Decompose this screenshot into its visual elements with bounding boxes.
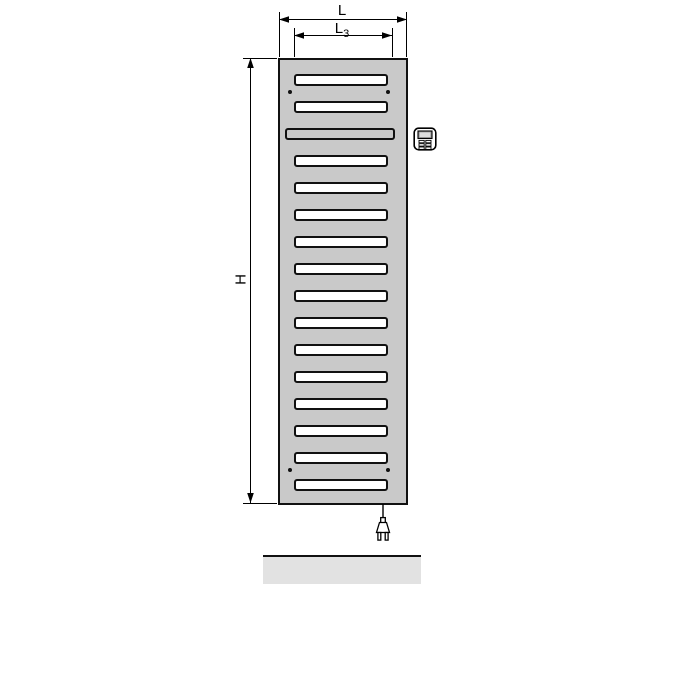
radiator-slat — [294, 371, 388, 383]
radiator-slat — [294, 155, 388, 167]
floor-bar — [263, 555, 421, 584]
dimension-label-slat-width: L3 — [329, 21, 355, 40]
arrow-L3-right — [382, 32, 392, 39]
mounting-dot — [386, 468, 390, 472]
dimension-label-height: H — [234, 267, 249, 293]
power-plug-icon — [370, 504, 398, 544]
radiator-slat — [294, 182, 388, 194]
radiator-slat — [294, 236, 388, 248]
radiator-slat — [294, 317, 388, 329]
arrow-H-bottom — [247, 493, 254, 503]
arrow-H-top — [247, 58, 254, 68]
dimension-label-slat-width-base: L — [335, 20, 343, 37]
radiator-slat — [294, 425, 388, 437]
radiator-collector-slat — [285, 128, 395, 140]
arrow-L3-left — [294, 32, 304, 39]
radiator-slat — [294, 452, 388, 464]
mounting-dot — [288, 90, 292, 94]
radiator-slat — [294, 74, 388, 86]
radiator-slat — [294, 101, 388, 113]
arrow-L-right — [397, 16, 407, 23]
radiator-slat — [294, 209, 388, 221]
mounting-dot — [386, 90, 390, 94]
radiator-slat — [294, 290, 388, 302]
radiator-dimensional-drawing: L L3 H — [0, 0, 700, 700]
dimension-label-width: L — [329, 3, 355, 18]
dimension-label-slat-width-sub: 3 — [343, 28, 349, 40]
control-unit-icon — [413, 127, 437, 151]
mounting-dot — [288, 468, 292, 472]
radiator-body — [278, 58, 408, 505]
radiator-slat — [294, 398, 388, 410]
radiator-slat — [294, 263, 388, 275]
radiator-slat — [294, 344, 388, 356]
radiator-slat — [294, 479, 388, 491]
arrow-L-left — [279, 16, 289, 23]
